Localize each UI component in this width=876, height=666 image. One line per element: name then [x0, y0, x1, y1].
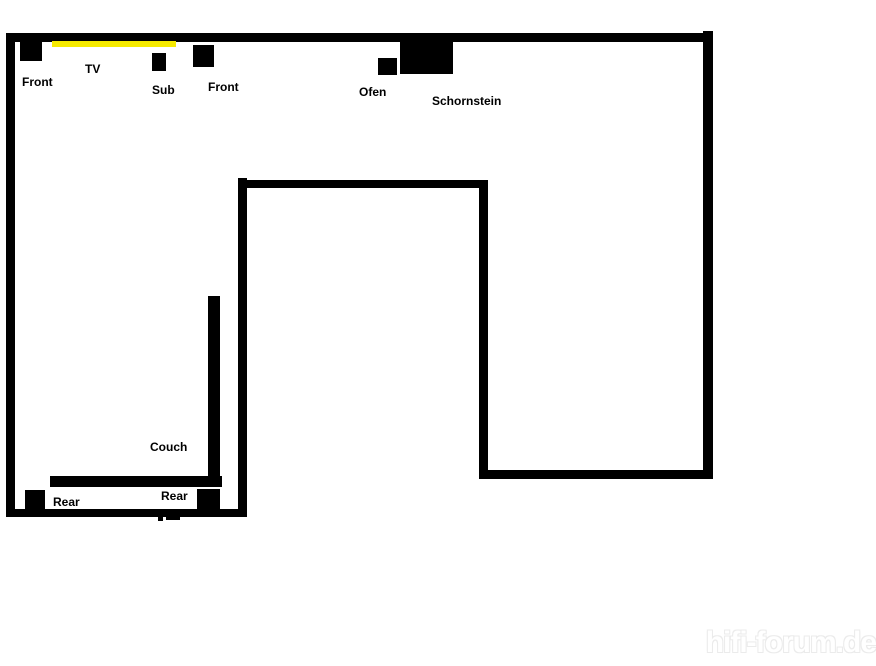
wall-stair-left	[238, 178, 247, 517]
wall-bottom-right	[479, 470, 713, 479]
wall-stair-top	[238, 180, 487, 188]
label-front-right: Front	[208, 81, 239, 93]
floorplan-canvas: FrontTVSubFrontOfenSchornsteinCouchRearR…	[0, 0, 876, 666]
couch-back-bar	[208, 296, 220, 487]
speaker-front-right-box	[193, 45, 214, 67]
label-rear-left: Rear	[53, 496, 80, 508]
wall-left	[6, 33, 15, 517]
label-ofen: Ofen	[359, 86, 386, 98]
speaker-sub-box	[152, 53, 166, 71]
couch-seat-bar	[50, 476, 222, 487]
pen-smudge-2	[166, 516, 180, 520]
label-schornstein: Schornstein	[432, 95, 501, 107]
label-couch: Couch	[150, 441, 187, 453]
wall-right	[703, 31, 713, 479]
tv-screen-line	[52, 41, 176, 47]
wall-bottom-left	[6, 509, 247, 517]
speaker-rear-left-box	[25, 490, 45, 509]
label-sub: Sub	[152, 84, 175, 96]
label-tv: TV	[85, 63, 100, 75]
pen-smudge-1	[158, 516, 163, 521]
wall-stair-right	[479, 180, 488, 478]
hifi-forum-watermark: hifi-forum.de	[706, 626, 876, 660]
label-rear-right: Rear	[161, 490, 188, 502]
speaker-front-left-box	[20, 39, 42, 61]
speaker-rear-right-box	[197, 489, 220, 509]
ofen-box	[378, 58, 397, 75]
label-front-left: Front	[22, 76, 53, 88]
schornstein-box	[400, 40, 453, 74]
